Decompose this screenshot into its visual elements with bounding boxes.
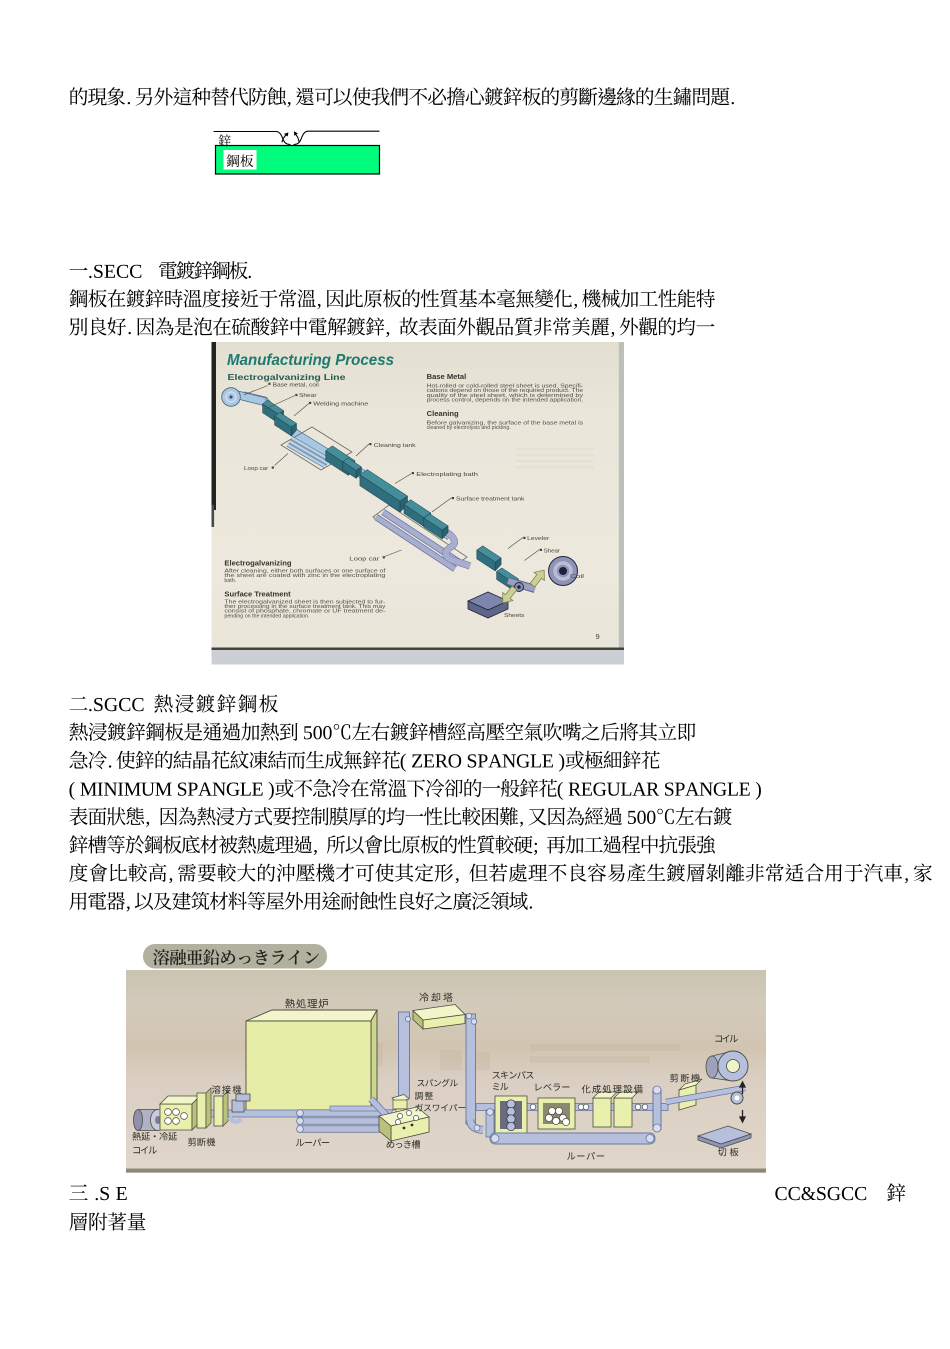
svg-text:Loop car: Loop car — [349, 557, 379, 563]
svg-text:Base Metal: Base Metal — [427, 372, 467, 381]
svg-text:Shear: Shear — [299, 393, 317, 399]
svg-text:9: 9 — [596, 632, 600, 641]
svg-text:Electrogalvanizing Line: Electrogalvanizing Line — [228, 372, 346, 382]
svg-text:Coil: Coil — [570, 574, 584, 580]
svg-text:Leveler: Leveler — [527, 536, 549, 542]
svg-text:process control, depends on th: process control, depends on the intended… — [427, 397, 583, 403]
svg-text:Sheets: Sheets — [504, 613, 524, 619]
svg-text:the sheet are coated with zinc: the sheet are coated with zinc in the el… — [224, 573, 385, 579]
svg-text:cleaned by electrolysis and pi: cleaned by electrolysis and pickling. — [427, 425, 511, 431]
svg-text:Manufacturing Process: Manufacturing Process — [227, 352, 394, 369]
svg-text:bath.: bath. — [224, 578, 236, 584]
svg-text:Cleaning tank: Cleaning tank — [374, 443, 416, 449]
svg-text:Welding machine: Welding machine — [313, 402, 369, 408]
svg-text:Loop car: Loop car — [244, 466, 268, 472]
svg-text:Base metal, coil: Base metal, coil — [273, 383, 319, 389]
svg-text:Shear: Shear — [544, 548, 560, 554]
svg-text:Surface treatment tank: Surface treatment tank — [456, 497, 524, 503]
svg-text:Cleaning: Cleaning — [427, 409, 459, 418]
svg-text:Surface Treatment: Surface Treatment — [224, 589, 291, 598]
svg-text:Electroplating bath: Electroplating bath — [416, 472, 478, 478]
svg-text:Electrogalvanizing: Electrogalvanizing — [224, 559, 291, 568]
svg-text:pending on the intended applic: pending on the intended application. — [224, 613, 309, 619]
